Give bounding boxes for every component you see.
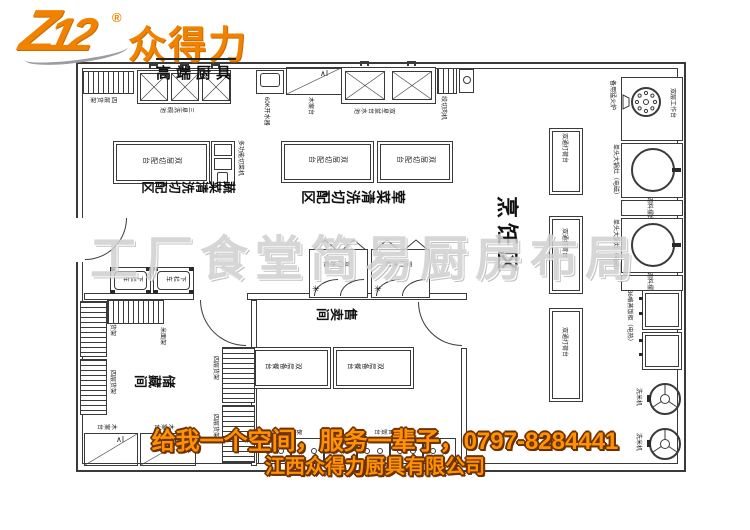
zone-meat-label: 区配切洗清菜荤 — [300, 190, 405, 204]
zone-storage-label: 间藏储 — [133, 375, 175, 388]
pot-circle — [631, 148, 675, 192]
double-sink-label: 池水台盆星双 — [352, 108, 394, 114]
brand-tagline: 高端厨具 — [156, 58, 236, 83]
rice-steamer-cabinet — [642, 332, 682, 370]
storage-shelf-label: 四层货架 — [211, 356, 218, 396]
rice-washer-icon — [648, 382, 682, 416]
wood-table-symbol: ∧I — [320, 69, 328, 78]
wood-prep-table-label: 台案木 — [95, 424, 116, 430]
zone-sales-label: 间卖售 — [315, 308, 357, 321]
veg-cutter-part — [214, 158, 232, 170]
footer-company: 江西众得力厨具有限公司 — [235, 450, 515, 479]
triple-sink-label: 池碗洗星三 — [158, 107, 193, 113]
steamer-handle — [639, 353, 643, 356]
rice-washer-label: 洗米机 — [634, 388, 641, 416]
wood-table-symbol: ∧I — [116, 435, 124, 444]
zone-veg-label: 区配切洗清菜蔬 — [140, 181, 235, 194]
shelf-rack-label: 架货层四 — [88, 97, 116, 103]
interior-wall-h-left — [84, 293, 194, 300]
stove-handle — [672, 243, 681, 247]
serving-prep-table-label: 台餐备层双 — [345, 363, 383, 370]
burner-icon — [629, 85, 663, 119]
steamer-handle — [639, 339, 643, 342]
serving-prep-table-label: 台餐备层双 — [263, 363, 301, 370]
pass-table-label: 双通打荷台 — [560, 133, 567, 191]
sink-bowl — [392, 71, 432, 100]
wood-prep-table — [84, 433, 138, 466]
watermark-text: 工厂食堂简易厨房布局 — [90, 219, 640, 289]
cart-wheel — [153, 290, 158, 294]
faucet-icon — [407, 61, 416, 66]
water-boiler-label: 60K开水器 — [262, 97, 269, 143]
faucet-icon — [360, 61, 369, 66]
grinder-motor-dial — [463, 76, 471, 84]
rice-washer-icon — [648, 427, 682, 461]
meat-cut-table-label: 台配切层双 — [383, 156, 447, 163]
left-entrance-gap — [73, 218, 85, 262]
rice-washer-label: 洗米机 — [634, 433, 641, 461]
veg-cutter-part — [214, 144, 232, 156]
wood-prep-table-label: 木案台 — [306, 97, 313, 129]
spice-table — [621, 200, 683, 216]
cart-wheel — [110, 290, 115, 294]
cart-wheel — [146, 290, 151, 294]
registered-trademark-icon: ® — [112, 10, 122, 25]
work-table-label: 双层工作台 — [668, 88, 675, 136]
spare-stove-label: 备用猛火炉 — [608, 80, 615, 130]
sink-bowl — [345, 71, 385, 100]
flyer-canvas: Z12Z12 ® 众得力 高端厨具 架货层四 池碗洗星三 60K开水器 ∧I 木… — [0, 0, 750, 530]
meat-grinder-label: 绞切肉机 — [439, 96, 446, 134]
big-pot-stove-label: 单头大锅灶（电磁） — [602, 144, 618, 198]
veg-cut-table-label: 台配切层双 — [128, 157, 194, 164]
rice-flour-rack-label: 米面架 — [158, 327, 165, 357]
rice-steamer-cabinet — [642, 290, 682, 330]
steamer-handle — [639, 312, 643, 315]
veg-cutter-label: 多功能切菜机 — [236, 140, 243, 192]
cart-wheel — [189, 290, 194, 294]
brand-logo: Z12Z12 ® 众得力 高端厨具 — [8, 8, 268, 80]
steamer-handle — [639, 297, 643, 300]
meat-grinder — [437, 68, 457, 94]
storage-shelf-left — [80, 301, 107, 357]
rice-steamer-label: 36格蒸饭柜（电热） — [616, 290, 632, 352]
stove-handle — [672, 168, 681, 172]
wood-prep-table-top — [286, 67, 342, 95]
pass-table-label: 双通打荷台 — [560, 327, 567, 385]
storage-shelf-left — [80, 359, 107, 415]
meat-cut-table-label: 台配切层双 — [294, 156, 360, 163]
storage-shelf-label: 四层货架 — [108, 370, 115, 410]
storage-shelf-right — [222, 347, 255, 403]
rice-flour-rack — [107, 300, 164, 324]
